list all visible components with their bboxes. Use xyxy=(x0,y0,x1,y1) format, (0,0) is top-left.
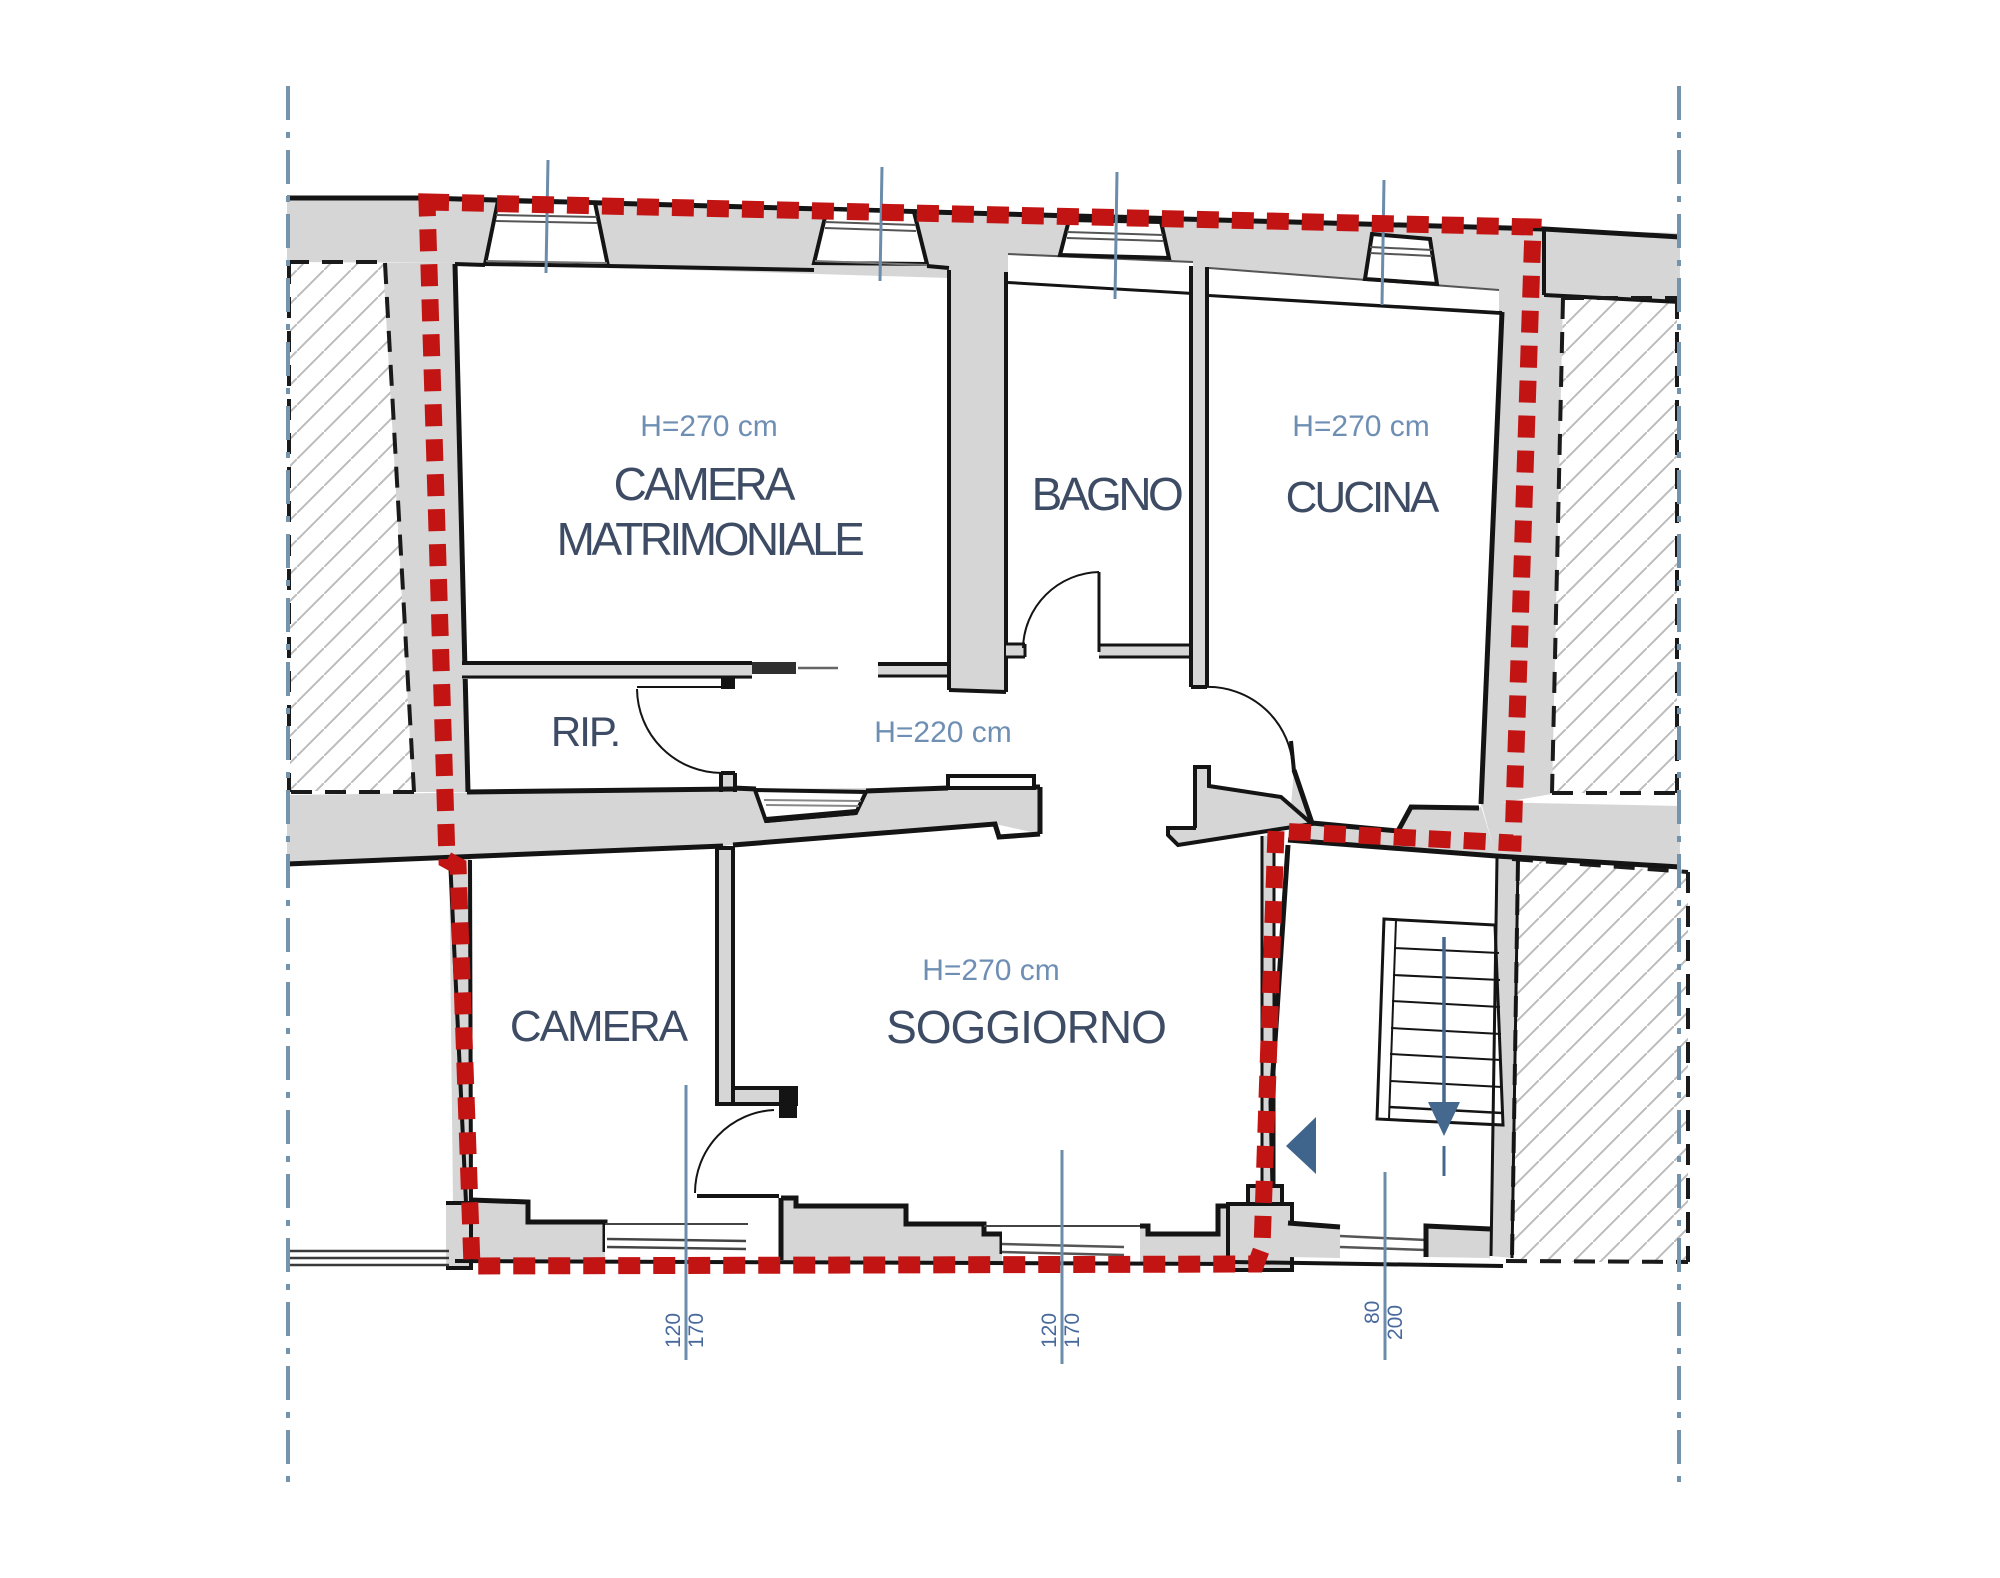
svg-text:H=270 cm: H=270 cm xyxy=(922,954,1060,987)
svg-text:200: 200 xyxy=(1384,1305,1407,1340)
svg-text:120: 120 xyxy=(1038,1313,1061,1348)
svg-text:H=220 cm: H=220 cm xyxy=(874,716,1012,749)
svg-text:170: 170 xyxy=(1061,1313,1084,1348)
svg-text:RIP.: RIP. xyxy=(551,708,619,755)
svg-text:H=270 cm: H=270 cm xyxy=(640,410,778,443)
svg-text:80: 80 xyxy=(1361,1301,1384,1324)
svg-text:CUCINA: CUCINA xyxy=(1286,473,1440,522)
svg-text:CAMERA: CAMERA xyxy=(510,1002,689,1051)
svg-text:BAGNO: BAGNO xyxy=(1032,468,1182,520)
svg-text:120: 120 xyxy=(662,1313,685,1348)
svg-text:SOGGIORNO: SOGGIORNO xyxy=(886,1001,1166,1053)
svg-text:H=270 cm: H=270 cm xyxy=(1292,410,1430,443)
svg-text:170: 170 xyxy=(685,1313,708,1348)
svg-text:MATRIMONIALE: MATRIMONIALE xyxy=(557,513,864,565)
svg-text:CAMERA: CAMERA xyxy=(614,458,796,510)
